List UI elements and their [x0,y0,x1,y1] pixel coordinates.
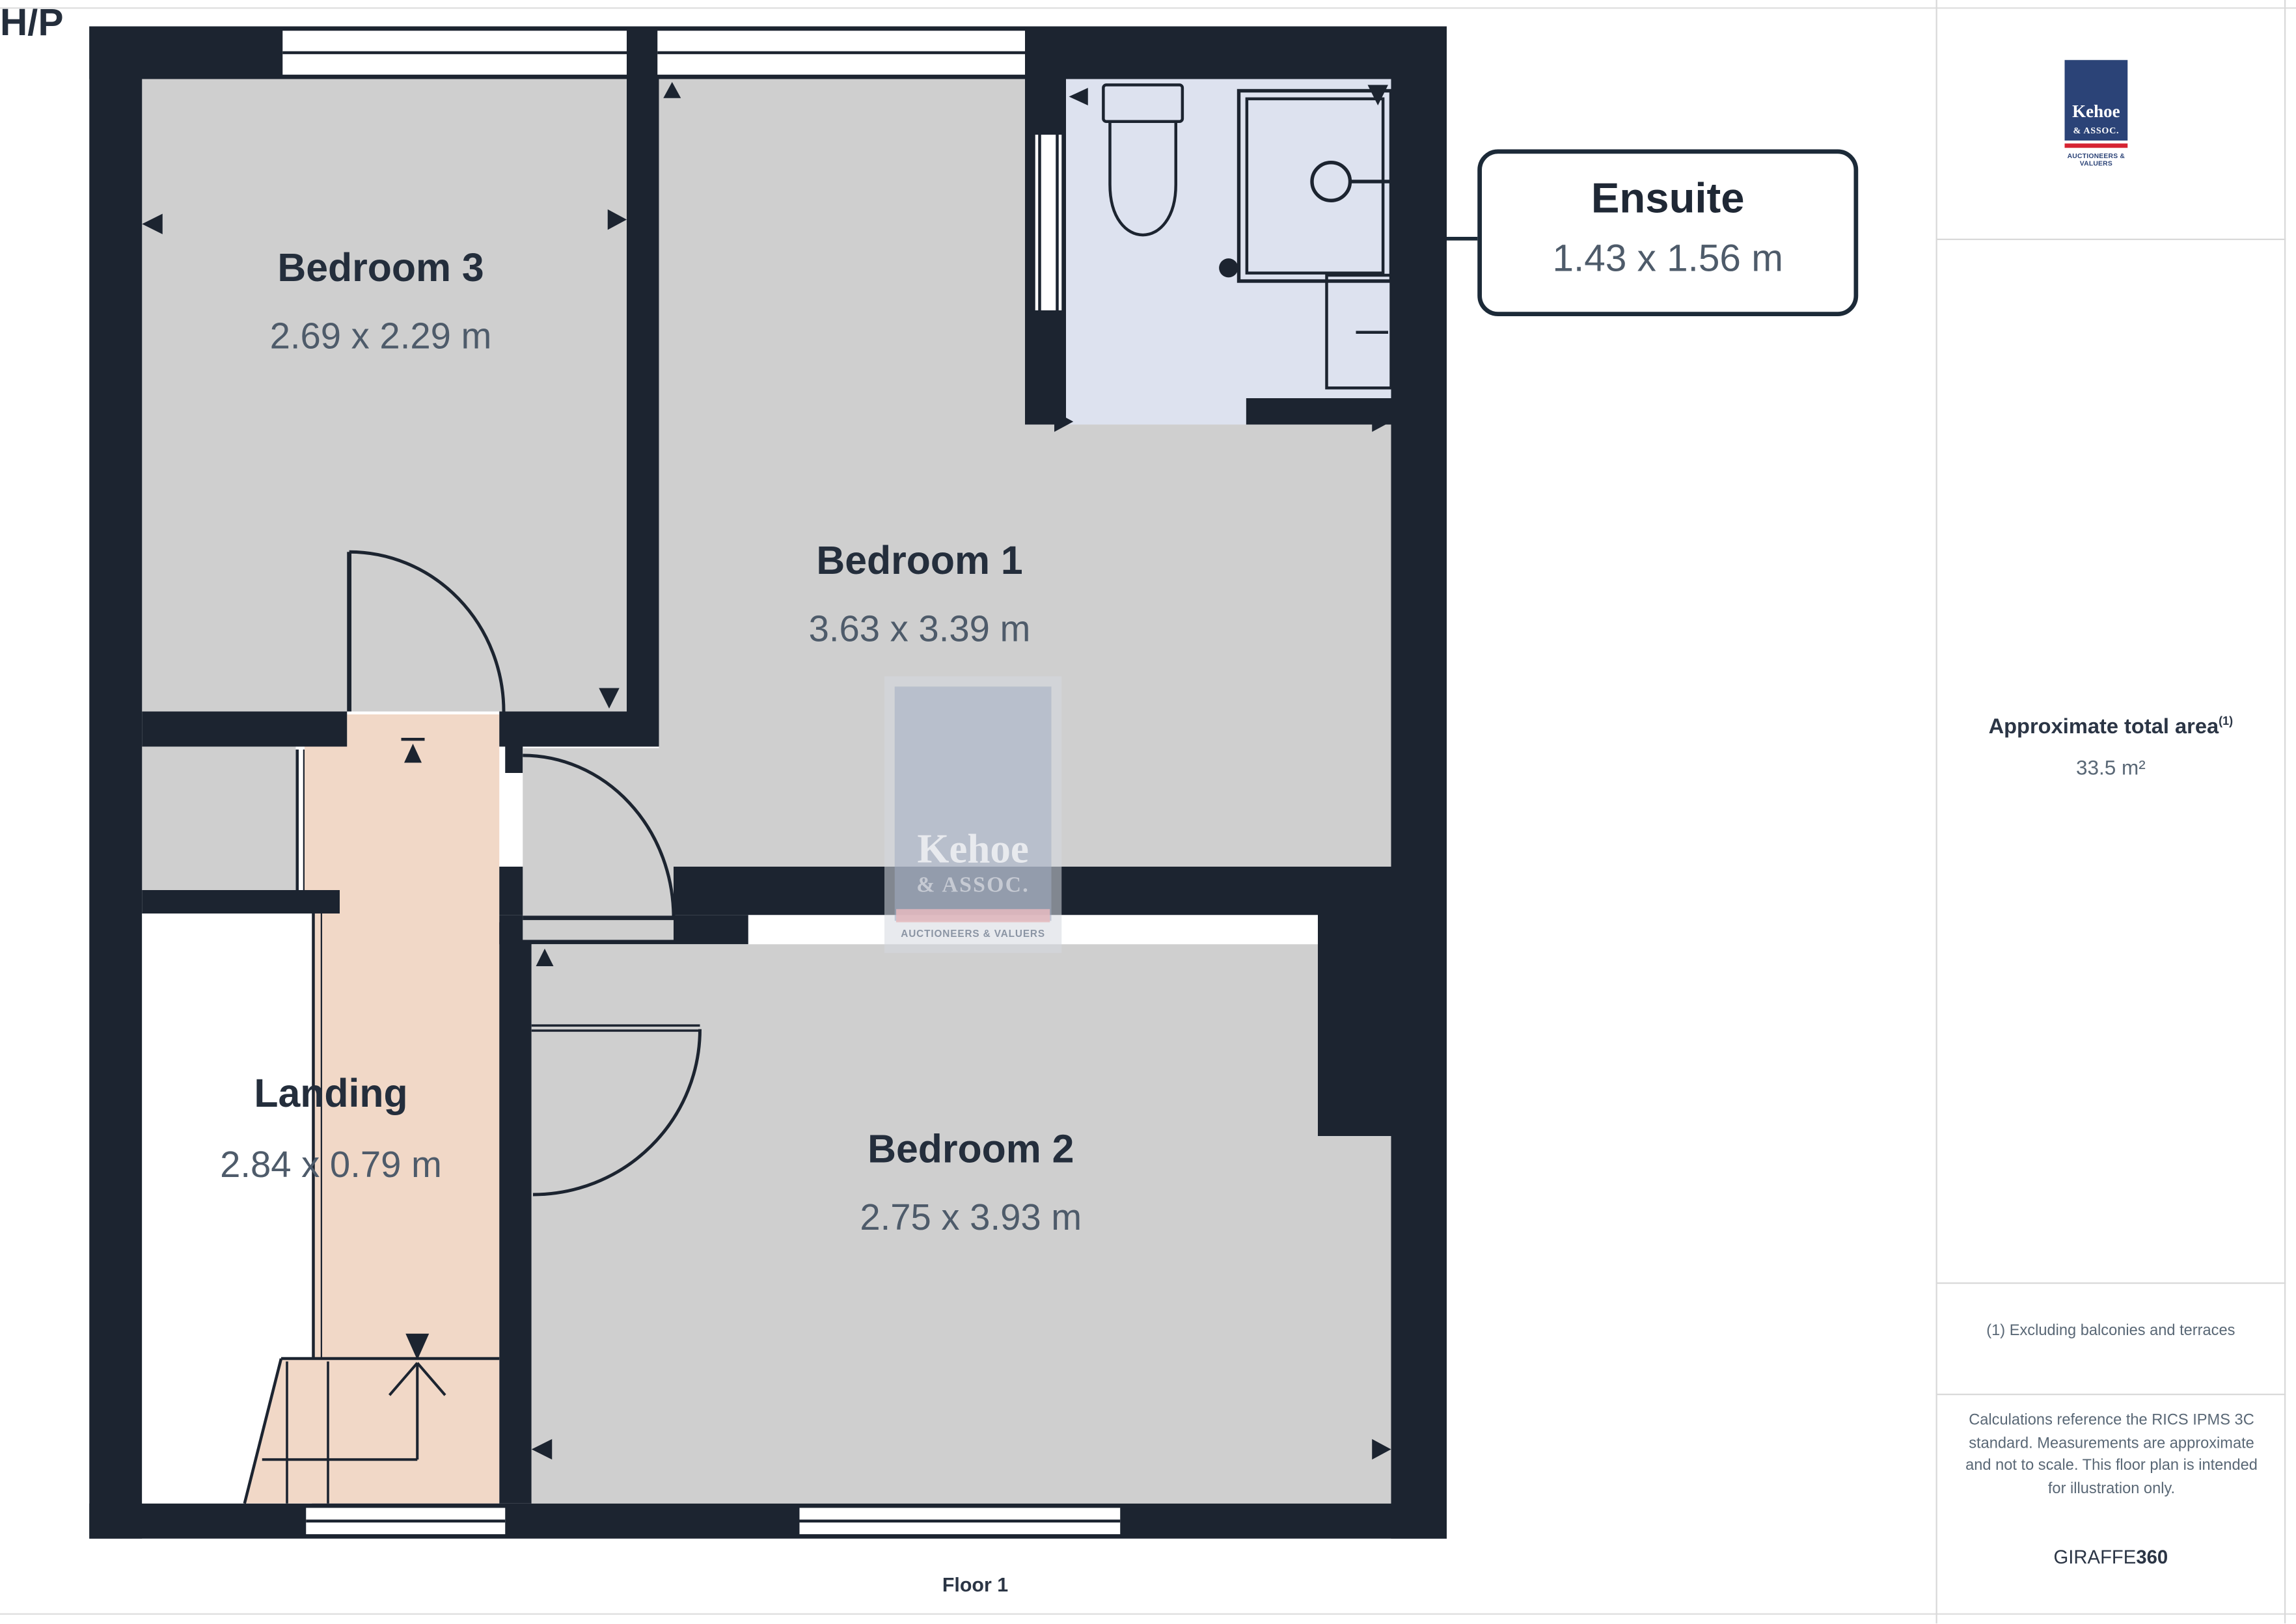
agency-logo-stripe [2065,142,2128,148]
window-ensuite-line2 [1056,135,1058,310]
brand-giraffe360: GIRAFFE360 [1943,1546,2278,1568]
page-bottom-border [0,1614,2296,1615]
agency-logo-kehoe-text: Kehoe [2065,101,2128,123]
floor-stairs [245,1359,500,1504]
total-area-title: Approximate total area(1) [1943,714,2278,739]
brand-giraffe-text: GIRAFFE [2054,1546,2137,1568]
total-area-value: 33.5 m² [1943,755,2278,779]
hp-door-line2 [303,750,305,890]
wall-left [89,27,142,1539]
ensuite-callout: Ensuite 1.43 x 1.56 m [1477,150,1858,317]
sidebar-left-border [1936,0,1937,1623]
floorplan-page: Kehoe & ASSOC. AUCTIONEERS & VALUERS Bed… [0,0,2296,1624]
floor-ensuite [1066,79,1391,399]
watermark-auctioneers-text: AUCTIONEERS & VALUERS [884,930,1061,940]
watermark-logo-block: Kehoe & ASSOC. [895,686,1052,921]
ensuite-callout-name: Ensuite [1482,176,1854,224]
wall-hp-bottom [142,890,340,913]
wall-bedroom3-bottom-right [499,712,659,747]
sidebar-divider-3 [1936,1394,2286,1395]
footnote-text: (1) Excluding balconies and terraces [1943,1322,2278,1340]
floor-bedroom2-upper [532,944,1318,1136]
window-bottom-stairs-mullion [306,1519,505,1522]
window-ensuite-line1 [1038,135,1040,310]
stair-railing-line2 [320,913,322,1359]
watermark-stripe [896,909,1050,922]
floor-bedroom1-alcove [523,748,674,940]
disclaimer-text: Calculations reference the RICS IPMS 3C … [1962,1410,2261,1501]
sidebar-divider-1 [1936,239,2286,240]
sidebar-divider-2 [1936,1282,2286,1284]
wall-ensuite-bottom [1246,398,1391,425]
wall-landing-bedroom2 [499,923,532,1504]
hp-door-line1 [296,750,298,890]
total-area-footnote-ref: (1) [2219,714,2233,727]
floorplan-stage: Kehoe & ASSOC. AUCTIONEERS & VALUERS Bed… [0,0,2296,1624]
total-area-title-text: Approximate total area [1989,716,2219,739]
bedroom3-door-opening [347,714,499,747]
ensuite-callout-dims: 1.43 x 1.56 m [1482,236,1854,281]
floor-ensuite-doorway [1066,398,1246,425]
total-area-block: Approximate total area(1) 33.5 m² [1943,714,2278,779]
watermark-kehoe-text: Kehoe [895,827,1052,874]
wall-bedroom3-bottom-left [142,712,347,747]
watermark-logo: Kehoe & ASSOC. AUCTIONEERS & VALUERS [884,677,1061,953]
floor-bedroom2-lower [532,1136,1391,1504]
watermark-assoc-text: & ASSOC. [895,874,1052,899]
window-bottom-bedroom2-mullion [800,1519,1121,1522]
wall-bedroom2-step [1318,867,1391,1136]
agency-logo-auctioneers-text: AUCTIONEERS & VALUERS [2065,152,2128,167]
floor-bedroom3 [142,79,627,712]
floor-landing [305,747,499,1359]
wall-alcove-stub [505,747,523,774]
stair-railing-line1 [312,913,314,1359]
wall-right [1391,27,1447,1539]
floor-label: Floor 1 [829,1574,1122,1596]
agency-logo-assoc-text: & ASSOC. [2065,126,2128,137]
page-top-border [0,7,2296,8]
floor-hp [142,747,295,891]
agency-logo-block: Kehoe & ASSOC. [2065,60,2128,141]
window-top-bedroom1-mullion [657,51,1025,55]
window-top-bedroom3-mullion [282,51,627,55]
brand-360-text: 360 [2136,1546,2168,1568]
agency-logo: Kehoe & ASSOC. AUCTIONEERS & VALUERS [2065,60,2128,166]
sidebar-right-border [2284,0,2286,1623]
wall-bedroom3-bedroom1 [627,79,659,715]
wall-bottom [89,1504,1447,1539]
